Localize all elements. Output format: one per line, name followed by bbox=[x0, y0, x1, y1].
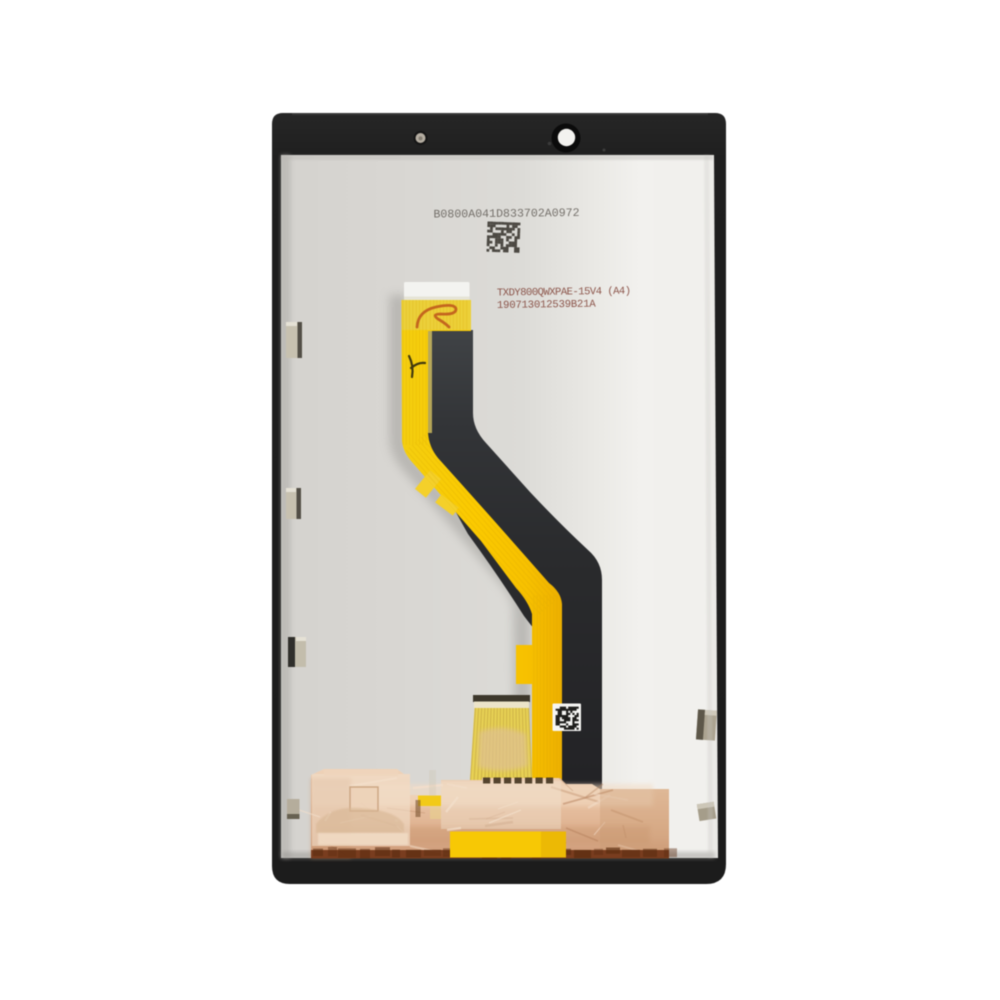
svg-text:TXDY800QWXPAE-15V4 (A4): TXDY800QWXPAE-15V4 (A4) bbox=[497, 286, 631, 300]
svg-text:190713012539B21A: 190713012539B21A bbox=[497, 299, 597, 312]
svg-text:B0800A041D833702A0972: B0800A041D833702A0972 bbox=[433, 207, 579, 222]
